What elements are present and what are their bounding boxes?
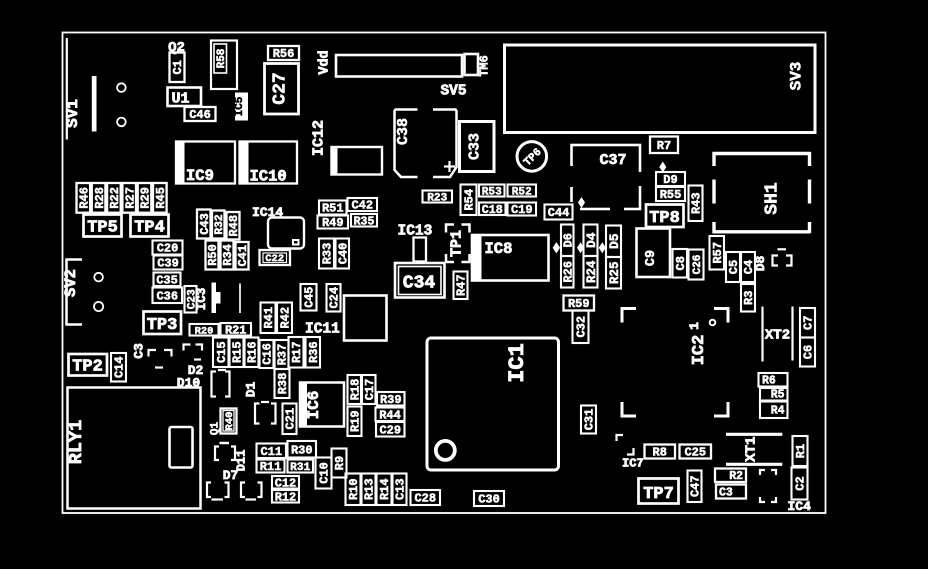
svg-text:C6: C6 bbox=[802, 345, 816, 359]
svg-text:R11: R11 bbox=[260, 460, 282, 474]
svg-text:C24: C24 bbox=[328, 287, 342, 309]
svg-text:XT1: XT1 bbox=[744, 437, 760, 462]
svg-text:TP2: TP2 bbox=[72, 358, 103, 377]
svg-text:C17: C17 bbox=[363, 379, 377, 401]
svg-text:SV2: SV2 bbox=[62, 269, 80, 297]
svg-text:R43: R43 bbox=[690, 192, 704, 214]
svg-text:IC11: IC11 bbox=[305, 322, 340, 338]
svg-text:R1: R1 bbox=[794, 444, 808, 458]
svg-text:R42: R42 bbox=[279, 307, 293, 329]
svg-text:C12: C12 bbox=[275, 476, 296, 490]
svg-text:C14: C14 bbox=[113, 356, 127, 378]
svg-text:R35: R35 bbox=[354, 215, 375, 228]
svg-text:R24: R24 bbox=[585, 260, 599, 283]
svg-text:TP5: TP5 bbox=[87, 219, 118, 238]
svg-text:R15: R15 bbox=[231, 341, 245, 363]
svg-text:R49: R49 bbox=[322, 216, 344, 230]
svg-text:TP8: TP8 bbox=[649, 209, 680, 228]
svg-text:C42: C42 bbox=[351, 199, 373, 213]
svg-text:R10: R10 bbox=[347, 478, 361, 500]
svg-text:SV5: SV5 bbox=[440, 84, 466, 100]
svg-text:C44: C44 bbox=[548, 206, 570, 220]
svg-text:IC6: IC6 bbox=[305, 391, 323, 420]
svg-text:R51: R51 bbox=[322, 202, 344, 216]
svg-text:R3: R3 bbox=[742, 291, 756, 305]
svg-text:R45: R45 bbox=[154, 187, 168, 209]
svg-text:TP4: TP4 bbox=[134, 219, 165, 238]
svg-text:IC5: IC5 bbox=[234, 96, 246, 116]
svg-text:R41: R41 bbox=[262, 307, 276, 329]
svg-text:C33: C33 bbox=[467, 133, 484, 160]
svg-text:R12: R12 bbox=[275, 490, 296, 504]
svg-text:R6: R6 bbox=[762, 375, 776, 388]
svg-text:IC7: IC7 bbox=[622, 457, 644, 471]
svg-text:R26: R26 bbox=[561, 261, 575, 282]
svg-text:R25: R25 bbox=[608, 261, 622, 284]
svg-text:R58: R58 bbox=[216, 48, 228, 68]
svg-text:C2: C2 bbox=[794, 476, 808, 490]
svg-text:R9: R9 bbox=[333, 456, 347, 470]
svg-text:TP3: TP3 bbox=[147, 316, 178, 335]
svg-text:TM6: TM6 bbox=[478, 55, 492, 77]
svg-text:R57: R57 bbox=[711, 242, 725, 264]
svg-text:R46: R46 bbox=[78, 187, 92, 209]
svg-text:R8: R8 bbox=[653, 446, 667, 460]
svg-text:C16: C16 bbox=[261, 343, 275, 365]
svg-text:R54: R54 bbox=[463, 189, 477, 211]
svg-text:C21: C21 bbox=[284, 408, 298, 430]
svg-text:R14: R14 bbox=[378, 478, 392, 500]
svg-text:R16: R16 bbox=[246, 341, 260, 363]
svg-text:C32: C32 bbox=[575, 316, 589, 338]
svg-text:C15: C15 bbox=[215, 341, 229, 363]
svg-text:C37: C37 bbox=[599, 152, 626, 169]
svg-text:IC3: IC3 bbox=[195, 288, 209, 311]
svg-text:C38: C38 bbox=[395, 118, 412, 145]
svg-text:R55: R55 bbox=[660, 188, 682, 202]
svg-text:R30: R30 bbox=[291, 443, 313, 457]
svg-text:R7: R7 bbox=[657, 139, 671, 153]
svg-text:C5: C5 bbox=[727, 260, 741, 274]
svg-text:C45: C45 bbox=[303, 287, 317, 308]
svg-text:R56: R56 bbox=[273, 47, 295, 61]
svg-text:C20: C20 bbox=[157, 242, 179, 256]
svg-text:IC8: IC8 bbox=[485, 240, 513, 258]
svg-text:C30: C30 bbox=[478, 493, 500, 507]
svg-text:R23: R23 bbox=[427, 192, 447, 204]
svg-text:D7: D7 bbox=[223, 468, 239, 483]
svg-text:R20: R20 bbox=[195, 325, 214, 337]
svg-text:C47: C47 bbox=[689, 475, 703, 497]
svg-text:C1: C1 bbox=[171, 60, 185, 74]
svg-text:D4: D4 bbox=[584, 232, 599, 248]
svg-text:C46: C46 bbox=[189, 108, 211, 122]
svg-text:R44: R44 bbox=[379, 408, 401, 422]
svg-text:R33: R33 bbox=[321, 243, 335, 265]
svg-text:R40: R40 bbox=[224, 412, 236, 431]
svg-text:R28: R28 bbox=[93, 187, 107, 209]
svg-text:U1: U1 bbox=[171, 91, 189, 108]
svg-text:C39: C39 bbox=[157, 257, 179, 271]
svg-text:R22: R22 bbox=[108, 187, 122, 209]
svg-text:R17: R17 bbox=[290, 341, 304, 363]
svg-text:R38: R38 bbox=[276, 373, 290, 395]
svg-text:R36: R36 bbox=[307, 341, 321, 363]
svg-text:IC10: IC10 bbox=[250, 168, 287, 186]
svg-text:C22: C22 bbox=[265, 253, 284, 265]
svg-text:D5: D5 bbox=[607, 233, 622, 249]
svg-text:D1: D1 bbox=[244, 382, 259, 398]
svg-text:R21: R21 bbox=[225, 323, 246, 337]
svg-text:C43: C43 bbox=[198, 213, 212, 235]
svg-text:IC4: IC4 bbox=[788, 499, 812, 514]
svg-text:C26: C26 bbox=[692, 255, 704, 275]
svg-text:R52: R52 bbox=[512, 186, 532, 198]
svg-text:TP7: TP7 bbox=[643, 485, 674, 504]
svg-text:IC9: IC9 bbox=[186, 167, 214, 185]
svg-text:R5: R5 bbox=[771, 389, 785, 402]
svg-text:C8: C8 bbox=[674, 256, 688, 270]
svg-text:R59: R59 bbox=[568, 297, 590, 311]
svg-text:C29: C29 bbox=[379, 423, 401, 437]
svg-text:R47: R47 bbox=[455, 274, 469, 296]
svg-text:1: 1 bbox=[687, 322, 702, 330]
svg-text:D8: D8 bbox=[753, 256, 768, 272]
svg-text:C35: C35 bbox=[156, 273, 178, 287]
svg-text:C18: C18 bbox=[482, 203, 503, 217]
svg-text:R48: R48 bbox=[227, 215, 241, 237]
svg-text:R50: R50 bbox=[206, 244, 220, 266]
svg-text:IC12: IC12 bbox=[311, 120, 328, 156]
svg-text:R34: R34 bbox=[221, 244, 235, 266]
svg-text:IC1: IC1 bbox=[505, 343, 530, 383]
svg-text:R39: R39 bbox=[380, 393, 402, 407]
svg-text:C3: C3 bbox=[719, 487, 733, 500]
svg-text:C28: C28 bbox=[414, 492, 436, 506]
svg-text:R32: R32 bbox=[214, 214, 226, 235]
svg-text:C13: C13 bbox=[394, 478, 408, 500]
svg-text:C27: C27 bbox=[271, 72, 291, 104]
svg-text:SV3: SV3 bbox=[788, 62, 806, 91]
svg-text:R4: R4 bbox=[771, 405, 785, 418]
svg-text:R53: R53 bbox=[482, 186, 502, 198]
svg-text:C31: C31 bbox=[583, 409, 597, 431]
svg-text:C19: C19 bbox=[511, 203, 533, 217]
svg-text:SH1: SH1 bbox=[763, 182, 783, 215]
svg-text:IC2: IC2 bbox=[690, 335, 709, 366]
svg-text:RLY1: RLY1 bbox=[66, 420, 87, 464]
svg-text:SV1: SV1 bbox=[64, 99, 82, 128]
svg-text:C10: C10 bbox=[318, 462, 332, 484]
svg-text:R27: R27 bbox=[123, 187, 137, 209]
svg-text:R18: R18 bbox=[348, 379, 362, 401]
svg-text:C25: C25 bbox=[684, 446, 706, 460]
svg-text:R2: R2 bbox=[729, 470, 743, 483]
svg-text:R13: R13 bbox=[363, 478, 377, 500]
svg-text:C34: C34 bbox=[403, 274, 436, 294]
svg-text:C7: C7 bbox=[802, 316, 816, 330]
svg-text:R29: R29 bbox=[139, 187, 153, 209]
svg-text:C3: C3 bbox=[132, 343, 147, 359]
svg-text:D9: D9 bbox=[663, 173, 677, 187]
svg-text:C41: C41 bbox=[236, 245, 250, 267]
svg-text:C40: C40 bbox=[336, 243, 350, 265]
svg-text:C9: C9 bbox=[644, 250, 659, 266]
svg-text:R31: R31 bbox=[290, 462, 310, 474]
svg-text:C36: C36 bbox=[156, 289, 178, 303]
svg-text:Vdd: Vdd bbox=[318, 50, 333, 74]
svg-text:XT2: XT2 bbox=[765, 328, 790, 344]
svg-text:R19: R19 bbox=[349, 410, 363, 432]
svg-text:TP1: TP1 bbox=[449, 230, 466, 257]
svg-text:C11: C11 bbox=[260, 445, 282, 459]
svg-text:D6: D6 bbox=[561, 233, 575, 247]
